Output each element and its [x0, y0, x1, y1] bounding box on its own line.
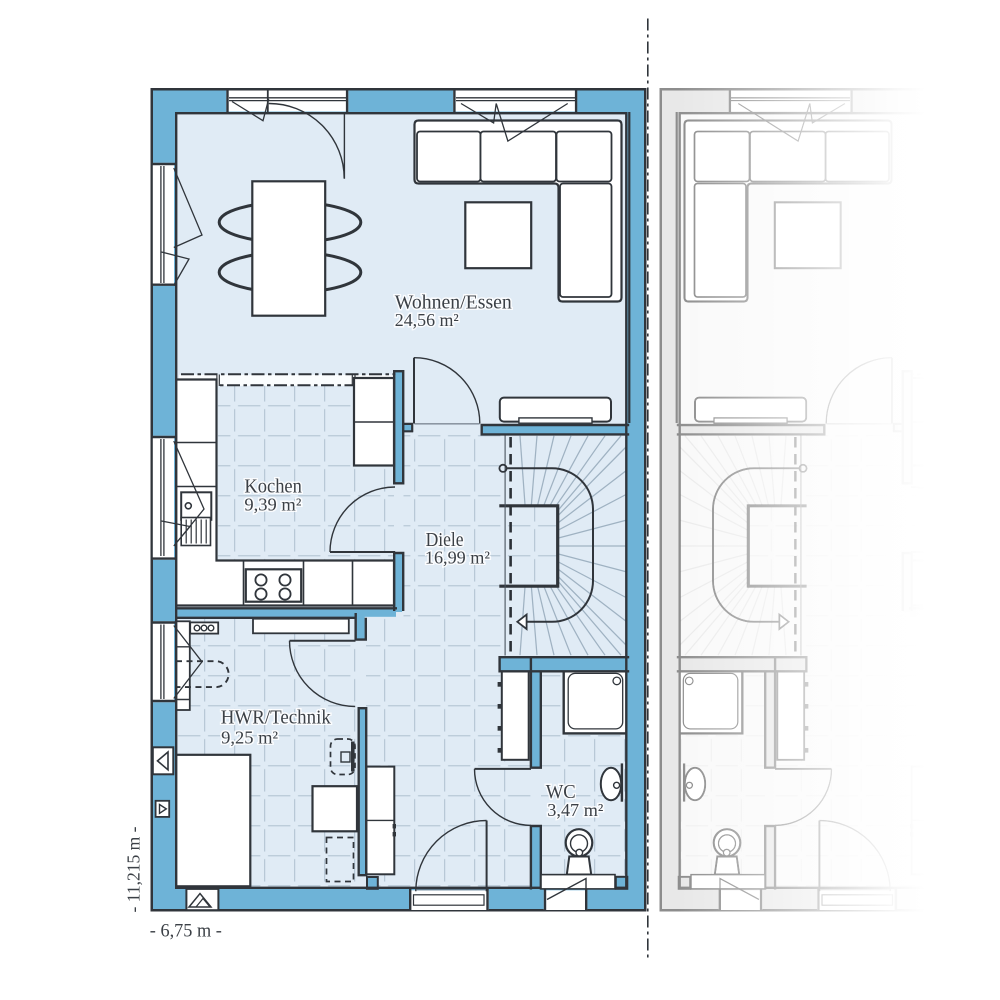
svg-text:3,47 m²: 3,47 m² [547, 800, 603, 820]
svg-text:- 11,215 m -: - 11,215 m - [124, 827, 144, 913]
svg-text:16,99 m²: 16,99 m² [425, 548, 490, 568]
svg-text:- 6,75 m -: - 6,75 m - [150, 922, 222, 942]
svg-text:9,39 m²: 9,39 m² [244, 495, 301, 515]
svg-text:9,25 m²: 9,25 m² [221, 728, 278, 748]
svg-text:HWR/Technik: HWR/Technik [221, 707, 331, 729]
svg-text:24,56 m²: 24,56 m² [395, 310, 459, 330]
